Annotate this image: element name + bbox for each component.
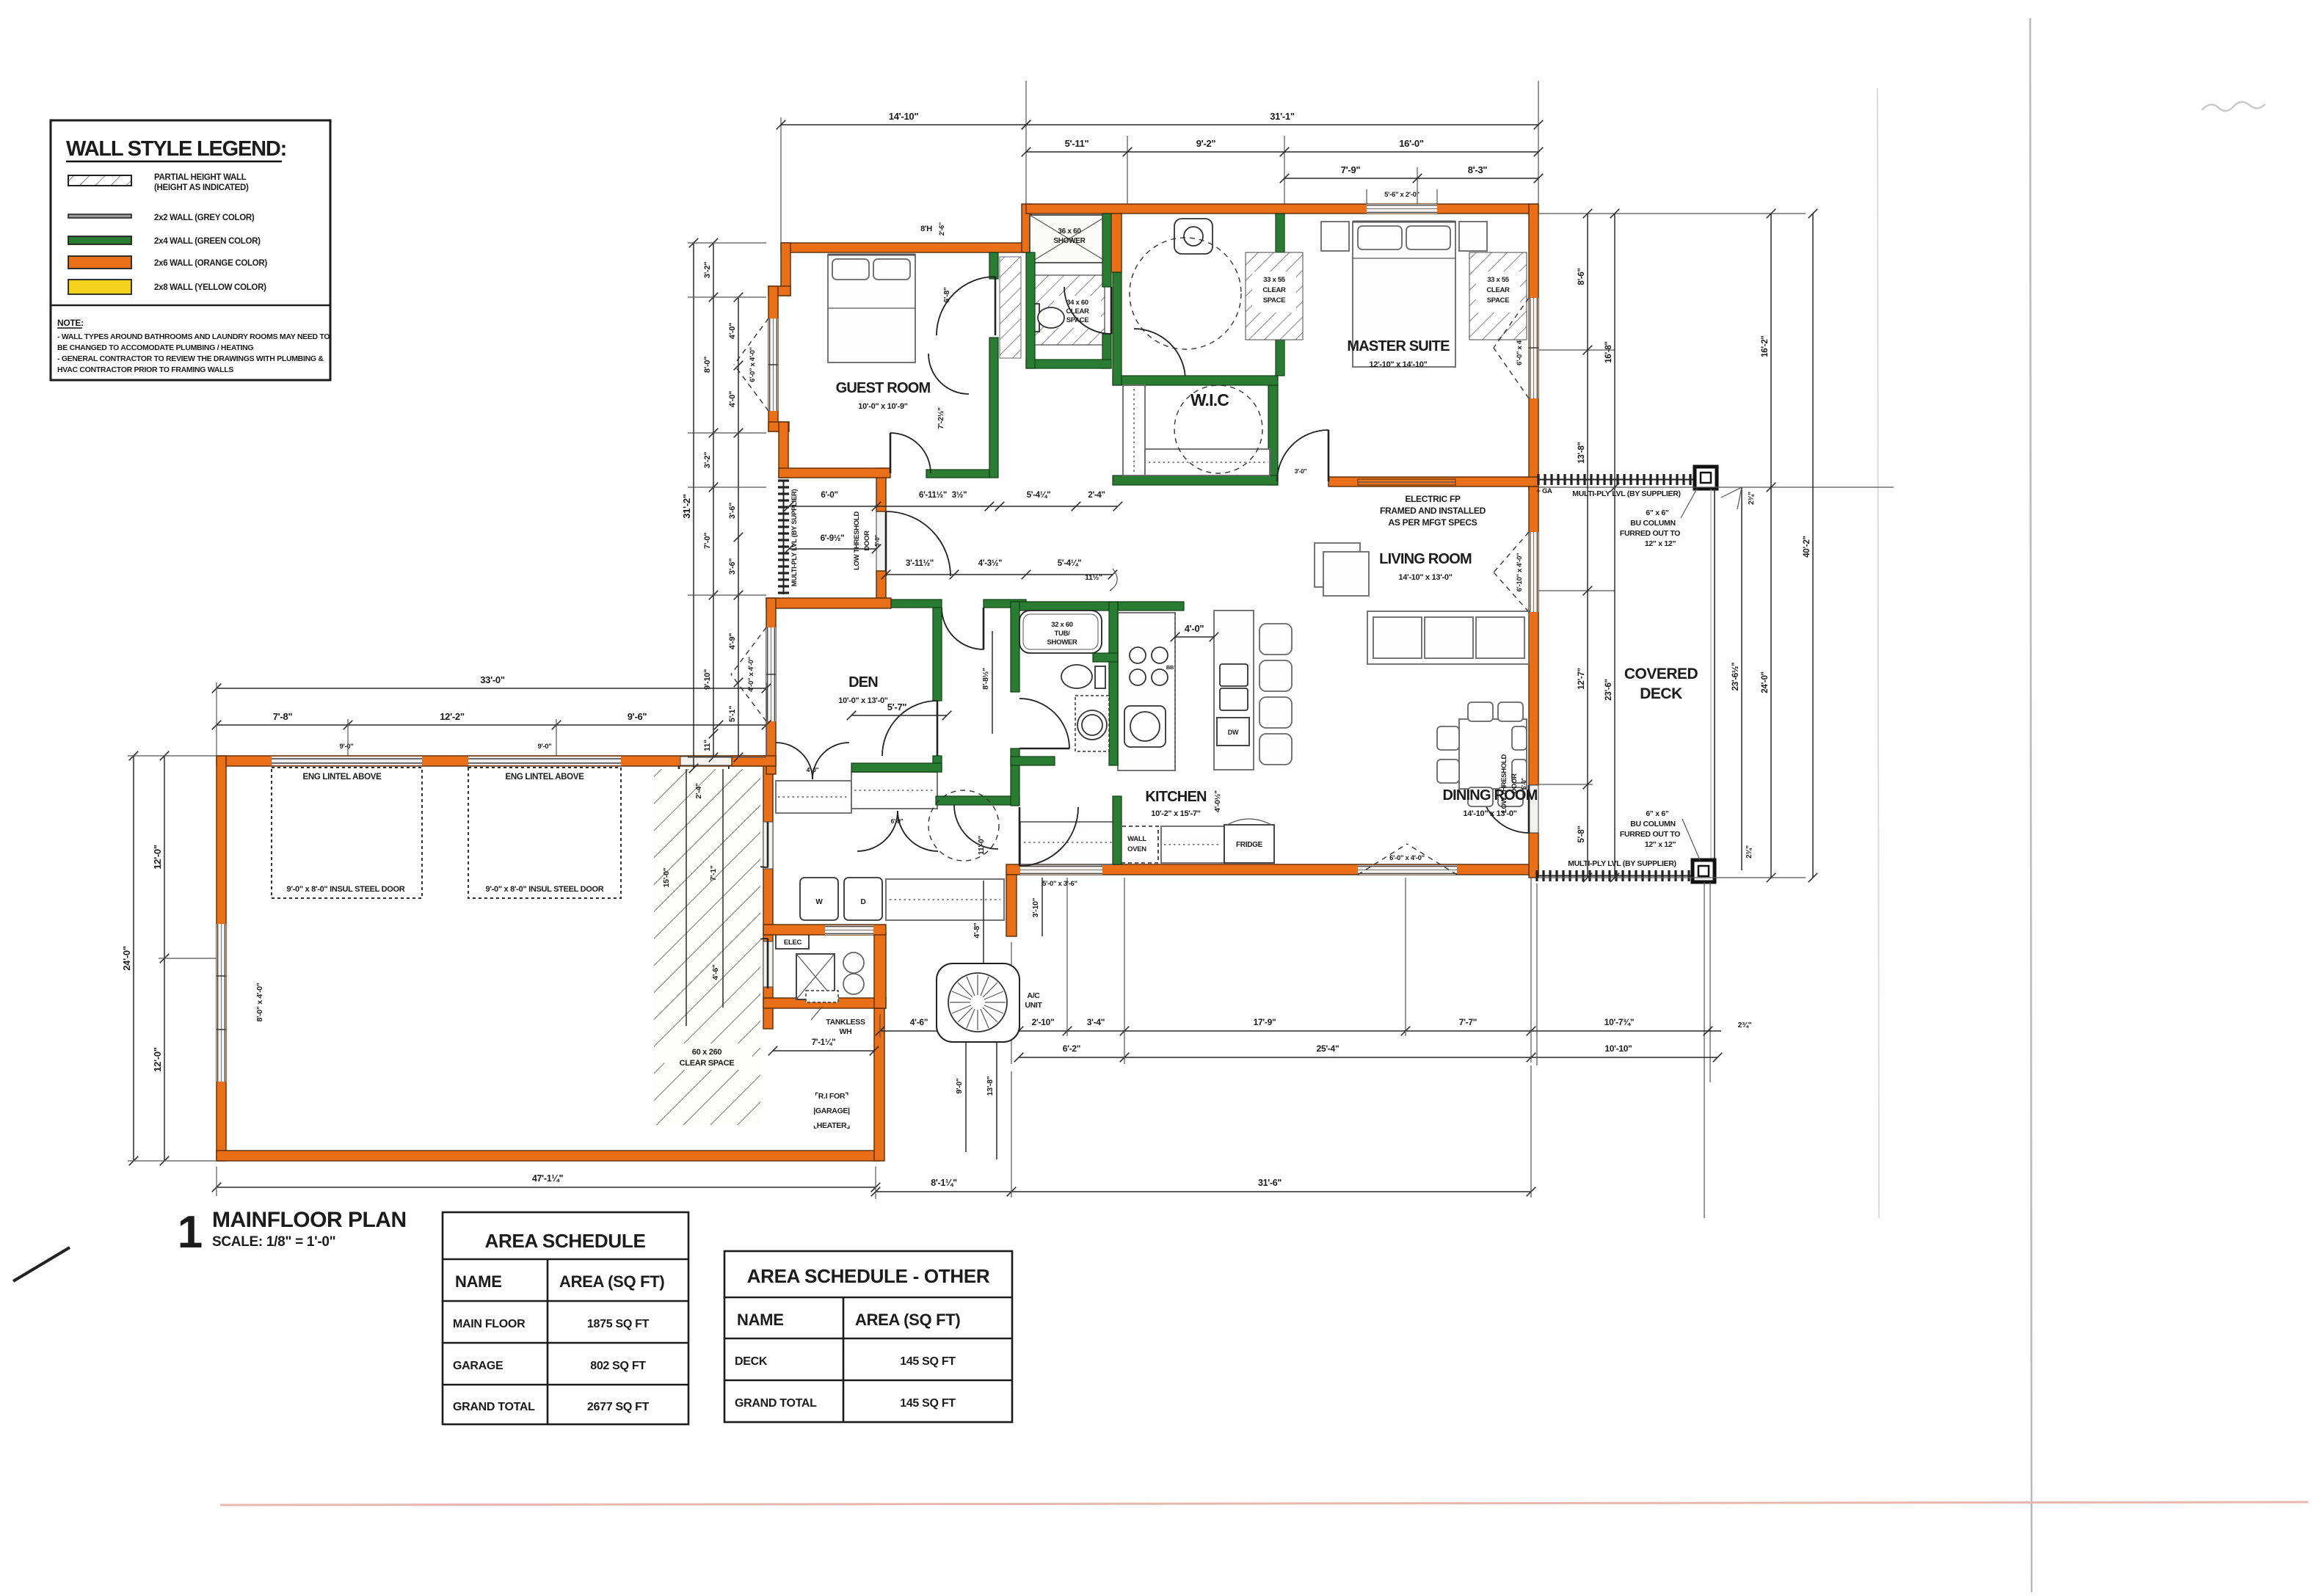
svg-text:2'-4": 2'-4" [1088, 491, 1105, 500]
svg-text:4'-0": 4'-0" [728, 391, 737, 407]
svg-text:7'-0": 7'-0" [703, 533, 712, 549]
svg-text:12'-10" x 14'-10": 12'-10" x 14'-10" [1369, 360, 1427, 369]
svg-text:5'-4¼": 5'-4¼" [1027, 491, 1051, 500]
svg-text:7'-9": 7'-9" [1341, 164, 1361, 175]
svg-text:4'-6": 4'-6" [711, 964, 720, 980]
svg-text:LOW THRESHOLD: LOW THRESHOLD [853, 511, 861, 570]
svg-text:- GENERAL CONTRACTOR TO REVIEW: - GENERAL CONTRACTOR TO REVIEW THE DRAWI… [57, 354, 324, 363]
svg-text:60 x 260: 60 x 260 [692, 1048, 722, 1057]
svg-text:FURRED OUT TO: FURRED OUT TO [1620, 529, 1680, 538]
svg-text:16'-8": 16'-8" [1604, 341, 1613, 362]
svg-text:34 x 60: 34 x 60 [1066, 299, 1088, 307]
svg-text:A/C: A/C [1027, 991, 1040, 1000]
svg-text:24'-0": 24'-0" [1761, 671, 1770, 693]
svg-text:7'-1¼": 7'-1¼" [812, 1038, 836, 1047]
svg-text:1875 SQ FT: 1875 SQ FT [587, 1318, 650, 1330]
svg-text:WALL: WALL [1127, 835, 1146, 843]
svg-text:4'-0": 4'-0" [1185, 623, 1204, 634]
svg-text:|GARAGE|: |GARAGE| [813, 1107, 850, 1115]
svg-text:11½": 11½" [1085, 573, 1102, 582]
svg-text:11": 11" [703, 740, 712, 751]
svg-text:2x8 WALL (YELLOW COLOR): 2x8 WALL (YELLOW COLOR) [154, 283, 266, 292]
svg-text:AREA (SQ FT): AREA (SQ FT) [855, 1311, 960, 1329]
svg-text:9'-0": 9'-0" [340, 743, 354, 751]
svg-text:15'-0": 15'-0" [662, 867, 671, 887]
svg-text:5'-8": 5'-8" [1577, 826, 1586, 842]
svg-text:9'-0": 9'-0" [955, 1078, 964, 1093]
svg-text:KITCHEN: KITCHEN [1145, 789, 1207, 805]
svg-text:3'-0": 3'-0" [1295, 467, 1307, 475]
svg-text:DW: DW [1228, 729, 1239, 736]
svg-text:7'-2½": 7'-2½" [937, 407, 945, 429]
svg-text:13'-8": 13'-8" [1577, 442, 1586, 463]
svg-text:12'-0": 12'-0" [152, 845, 163, 870]
svg-text:LIVING ROOM: LIVING ROOM [1379, 551, 1472, 567]
svg-text:5'-6" x 2'-0": 5'-6" x 2'-0" [1384, 191, 1419, 199]
svg-text:GUEST ROOM: GUEST ROOM [836, 380, 931, 396]
svg-text:6" x 6": 6" x 6" [1646, 809, 1669, 818]
svg-text:4'-6": 4'-6" [910, 1017, 928, 1027]
svg-text:9'-2": 9'-2" [1196, 138, 1216, 149]
svg-text:9'-0": 9'-0" [538, 743, 552, 751]
svg-text:8'-0": 8'-0" [703, 357, 712, 373]
svg-text:10'-7¾": 10'-7¾" [1604, 1017, 1634, 1027]
svg-text:4'-9": 4'-9" [728, 633, 737, 649]
svg-text:MASTER SUITE: MASTER SUITE [1347, 338, 1450, 354]
svg-text:CLEAR: CLEAR [1486, 286, 1510, 294]
svg-text:SPACE: SPACE [1263, 296, 1286, 305]
svg-text:31'-6": 31'-6" [1258, 1178, 1282, 1188]
svg-text:4'-8": 4'-8" [973, 922, 981, 938]
svg-text:6'-9½": 6'-9½" [821, 534, 845, 543]
svg-text:12" x 12": 12" x 12" [1645, 840, 1676, 849]
svg-text:MULTI-PLY LVL (BY SUPPLIER): MULTI-PLY LVL (BY SUPPLIER) [1572, 489, 1680, 498]
svg-text:FRIDGE: FRIDGE [1236, 841, 1263, 849]
svg-text:GRAND TOTAL: GRAND TOTAL [453, 1401, 535, 1413]
svg-text:(HEIGHT AS INDICATED): (HEIGHT AS INDICATED) [154, 183, 249, 192]
svg-text:DECK: DECK [735, 1355, 768, 1368]
svg-text:DECK: DECK [1640, 685, 1682, 702]
svg-text:10'-0" x 13'-0": 10'-0" x 13'-0" [838, 696, 888, 705]
svg-text:AREA (SQ FT): AREA (SQ FT) [559, 1272, 664, 1291]
svg-text:40'-2": 40'-2" [1803, 536, 1811, 557]
svg-text:BU COLUMN: BU COLUMN [1630, 519, 1675, 528]
svg-text:31'-1": 31'-1" [1270, 111, 1295, 122]
svg-text:3'-10": 3'-10" [1031, 897, 1040, 917]
svg-text:14'-10" x 13'-0": 14'-10" x 13'-0" [1463, 809, 1516, 818]
svg-text:2677 SQ FT: 2677 SQ FT [587, 1401, 650, 1413]
svg-text:3'-11½": 3'-11½" [906, 559, 934, 568]
svg-text:2x2 WALL (GREY COLOR): 2x2 WALL (GREY COLOR) [154, 214, 255, 222]
svg-text:23'-6½": 23'-6½" [1731, 663, 1740, 691]
svg-text:DOOR: DOOR [1511, 773, 1519, 794]
svg-text:2x6 WALL (ORANGE COLOR): 2x6 WALL (ORANGE COLOR) [154, 259, 267, 268]
svg-text:NOTE:: NOTE: [57, 318, 84, 328]
svg-text:HVAC CONTRACTOR PRIOR TO FRAMI: HVAC CONTRACTOR PRIOR TO FRAMING WALLS [57, 365, 233, 374]
svg-text:AS PER MFGT SPECS: AS PER MFGT SPECS [1389, 517, 1477, 528]
svg-text:9'-6": 9'-6" [628, 711, 647, 722]
svg-text:6'-11½": 6'-11½" [919, 491, 947, 500]
svg-text:BB: BB [1166, 664, 1174, 671]
svg-text:SHOWER: SHOWER [1053, 237, 1086, 245]
svg-text:8'-8½": 8'-8½" [981, 668, 990, 690]
svg-text:ELECTRIC FP: ELECTRIC FP [1405, 494, 1461, 504]
svg-text:145 SQ FT: 145 SQ FT [900, 1355, 956, 1368]
svg-text:CLEAR SPACE: CLEAR SPACE [680, 1059, 735, 1068]
svg-text:31'-2": 31'-2" [681, 494, 692, 519]
svg-text:8'-6": 8'-6" [1577, 268, 1586, 285]
svg-text:- WALL TYPES AROUND BATHROOMS: - WALL TYPES AROUND BATHROOMS AND LAUNDR… [57, 332, 330, 341]
svg-text:DOOR: DOOR [863, 531, 871, 551]
svg-text:2¾": 2¾" [1738, 1021, 1752, 1030]
svg-text:AREA SCHEDULE - OTHER: AREA SCHEDULE - OTHER [747, 1265, 990, 1287]
svg-text:2¾": 2¾" [1748, 492, 1756, 505]
svg-text:17'-9": 17'-9" [1254, 1017, 1276, 1027]
svg-text:UNIT: UNIT [1025, 1001, 1042, 1010]
svg-text:TANKLESS: TANKLESS [826, 1018, 865, 1027]
svg-text:BE CHANGED TO ACCOMODATE PLUMB: BE CHANGED TO ACCOMODATE PLUMBING / HEAT… [57, 343, 253, 352]
svg-text:7'-1": 7'-1" [709, 865, 718, 881]
svg-text:5'-0" x 3'-6": 5'-0" x 3'-6" [1042, 880, 1077, 888]
svg-text:6" x 6": 6" x 6" [1646, 509, 1669, 517]
svg-text:3½": 3½" [952, 491, 967, 500]
svg-text:12'-2": 12'-2" [440, 711, 465, 722]
svg-text:24'-0": 24'-0" [121, 946, 132, 971]
svg-text:4'-0" x 4'-0": 4'-0" x 4'-0" [747, 657, 755, 692]
svg-text:10'-10": 10'-10" [1604, 1043, 1632, 1054]
svg-text:WH: WH [840, 1027, 852, 1036]
svg-text:9'-10": 9'-10" [703, 669, 712, 690]
svg-text:WALL STYLE LEGEND:: WALL STYLE LEGEND: [66, 137, 286, 161]
svg-text:5'-4¼": 5'-4¼" [1058, 559, 1082, 568]
svg-text:FRAMED AND INSTALLED: FRAMED AND INSTALLED [1380, 506, 1486, 516]
svg-text:ELEC: ELEC [784, 939, 802, 947]
svg-text:4'-3½": 4'-3½" [978, 559, 1003, 568]
svg-text:6'-0": 6'-0" [891, 817, 904, 825]
svg-text:W.I.C: W.I.C [1190, 390, 1229, 409]
svg-text:9'-0" x 8'-0" INSUL STEEL DOOR: 9'-0" x 8'-0" INSUL STEEL DOOR [486, 885, 604, 894]
svg-text:6'-8": 6'-8" [942, 287, 951, 302]
svg-text:AREA SCHEDULE: AREA SCHEDULE [484, 1230, 645, 1252]
svg-text:GARAGE: GARAGE [453, 1360, 504, 1372]
svg-text:5'-0": 5'-0" [1521, 778, 1527, 790]
svg-text:6'-0" x 4'-0": 6'-0" x 4'-0" [749, 347, 757, 382]
svg-text:802 SQ FT: 802 SQ FT [590, 1360, 646, 1372]
svg-text:9'-0" x 8'-0" INSUL STEEL DOOR: 9'-0" x 8'-0" INSUL STEEL DOOR [287, 885, 405, 894]
svg-text:2'-6": 2'-6" [938, 222, 945, 236]
svg-text:1: 1 [178, 1207, 203, 1258]
svg-text:SPACE: SPACE [1487, 296, 1510, 305]
svg-text:13'-8": 13'-8" [986, 1076, 995, 1096]
svg-text:D: D [861, 898, 866, 906]
svg-text:3'-2": 3'-2" [703, 452, 712, 468]
svg-text:16'-2": 16'-2" [1761, 335, 1770, 357]
svg-text:6'-0" x 4'-0": 6'-0" x 4'-0" [1389, 854, 1425, 862]
svg-text:10'-2" x 15'-7": 10'-2" x 15'-7" [1151, 809, 1201, 818]
svg-text:3'-6": 3'-6" [728, 558, 737, 575]
svg-text:33'-0": 33'-0" [480, 674, 505, 685]
svg-text:OVEN: OVEN [1127, 845, 1146, 853]
svg-text:8'H: 8'H [920, 225, 932, 233]
svg-text:4'-0": 4'-0" [728, 323, 737, 339]
svg-text:LOW THRESHOLD: LOW THRESHOLD [1500, 754, 1508, 813]
svg-text:4'-0½": 4'-0½" [1213, 790, 1222, 812]
svg-text:⌜R.I FOR⌝: ⌜R.I FOR⌝ [815, 1092, 848, 1101]
svg-text:2¾": 2¾" [1745, 845, 1753, 859]
svg-text:MAIN FLOOR: MAIN FLOOR [453, 1318, 526, 1330]
svg-text:MULTI-PLY LVL (BY SUPPLIER): MULTI-PLY LVL (BY SUPPLIER) [1568, 859, 1676, 868]
svg-text:33 x 55: 33 x 55 [1263, 276, 1286, 284]
svg-text:2'-4": 2'-4" [694, 783, 703, 798]
svg-text:5'-1": 5'-1" [728, 706, 737, 722]
svg-text:GRAND TOTAL: GRAND TOTAL [735, 1397, 817, 1410]
svg-text:BU COLUMN: BU COLUMN [1630, 820, 1675, 828]
svg-text:TUB/: TUB/ [1055, 630, 1071, 638]
svg-text:7'-8": 7'-8" [273, 711, 293, 722]
svg-text:7'-7": 7'-7" [1459, 1017, 1477, 1027]
svg-text:DEN: DEN [848, 674, 878, 690]
svg-text:12'-0": 12'-0" [152, 1047, 163, 1072]
svg-text:ENG LINTEL ABOVE: ENG LINTEL ABOVE [302, 773, 382, 781]
svg-text:5'-11": 5'-11" [1065, 138, 1089, 149]
svg-text:8'-3": 8'-3" [1468, 164, 1488, 175]
svg-text:3'-2": 3'-2" [703, 262, 712, 278]
svg-text:COVERED: COVERED [1624, 666, 1698, 682]
svg-text:+ GA: + GA [1536, 487, 1552, 495]
svg-text:3'-4": 3'-4" [1087, 1017, 1105, 1027]
svg-text:CLEAR: CLEAR [1262, 286, 1286, 294]
svg-text:12'-7": 12'-7" [1577, 668, 1586, 689]
svg-text:10'-0" x 10'-9": 10'-0" x 10'-9" [858, 402, 908, 411]
svg-text:NAME: NAME [455, 1272, 502, 1291]
svg-text:145 SQ FT: 145 SQ FT [900, 1397, 956, 1410]
svg-text:2x4 WALL (GREEN COLOR): 2x4 WALL (GREEN COLOR) [154, 237, 261, 246]
svg-text:MAINFLOOR PLAN: MAINFLOOR PLAN [212, 1208, 407, 1232]
svg-text:6'-10" x 4'-0": 6'-10" x 4'-0" [1516, 553, 1524, 592]
svg-text:23'-6": 23'-6" [1604, 679, 1613, 700]
svg-text:33 x 55: 33 x 55 [1487, 276, 1510, 284]
svg-text:4'-0": 4'-0" [807, 766, 819, 773]
svg-text:32 x 60: 32 x 60 [1051, 621, 1073, 629]
svg-text:12" x 12": 12" x 12" [1645, 539, 1676, 548]
svg-text:8'-1¼": 8'-1¼" [931, 1178, 957, 1188]
svg-text:⌞HEATER⌟: ⌞HEATER⌟ [813, 1121, 850, 1130]
svg-text:3'-6": 3'-6" [728, 503, 737, 519]
svg-text:SCALE: 1/8" = 1'-0": SCALE: 1/8" = 1'-0" [212, 1234, 335, 1250]
svg-text:SHOWER: SHOWER [1047, 638, 1077, 646]
svg-text:NAME: NAME [737, 1311, 784, 1329]
svg-text:W: W [815, 898, 823, 906]
svg-text:FURRED OUT TO: FURRED OUT TO [1620, 830, 1680, 839]
svg-text:47'-1¼": 47'-1¼" [532, 1173, 564, 1184]
svg-text:PARTIAL HEIGHT WALL: PARTIAL HEIGHT WALL [154, 173, 247, 182]
svg-text:6'-2": 6'-2" [1063, 1043, 1080, 1054]
svg-text:14'-10": 14'-10" [889, 111, 919, 122]
svg-text:5'-7": 5'-7" [887, 702, 907, 713]
svg-text:8'-0" x 4'-0": 8'-0" x 4'-0" [255, 983, 264, 1021]
svg-text:ENG LINTEL ABOVE: ENG LINTEL ABOVE [505, 773, 584, 781]
svg-text:2'-10": 2'-10" [1032, 1017, 1055, 1027]
svg-text:6'-0": 6'-0" [821, 491, 837, 500]
svg-text:16'-0": 16'-0" [1399, 138, 1424, 149]
svg-text:11'-0": 11'-0" [977, 836, 986, 855]
svg-text:36 x 60: 36 x 60 [1058, 227, 1081, 236]
svg-text:25'-4": 25'-4" [1317, 1043, 1339, 1054]
svg-text:14'-10" x 13'-0": 14'-10" x 13'-0" [1398, 573, 1452, 582]
